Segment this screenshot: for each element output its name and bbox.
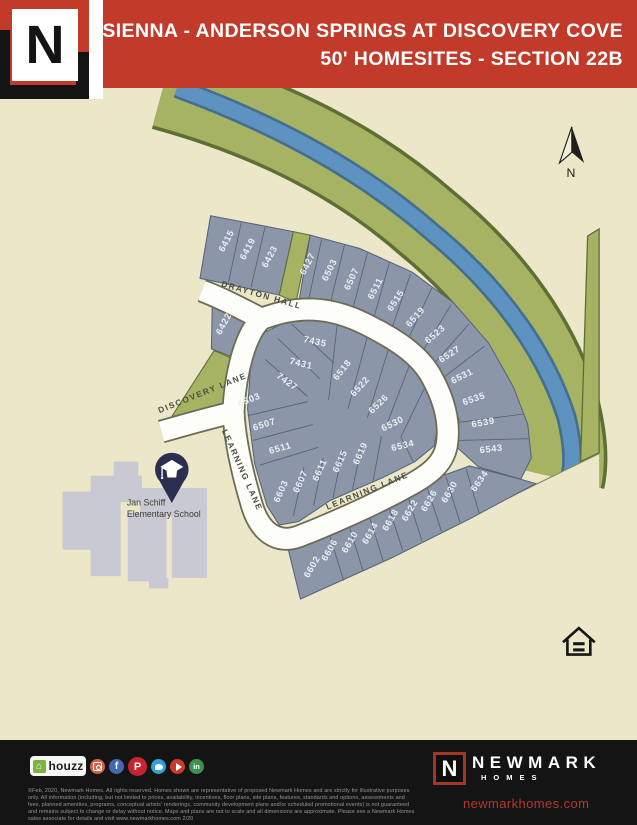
school-name-line1: Jan Schiff xyxy=(127,498,166,508)
houzz-icon: ⌂ xyxy=(33,760,46,773)
site-map: Jan Schiff Elementary School DRAYTON HAL… xyxy=(0,88,637,740)
houzz-badge[interactable]: ⌂ houzz xyxy=(30,756,86,776)
facebook-icon[interactable]: f xyxy=(109,759,124,774)
twitter-icon[interactable] xyxy=(151,759,166,774)
linkedin-icon[interactable]: in xyxy=(189,759,204,774)
title-line-1: SIENNA - ANDERSON SPRINGS AT DISCOVERY C… xyxy=(102,17,623,45)
title-line-2: 50' HOMESITES - SECTION 22B xyxy=(102,45,623,73)
legal-disclaimer: ©Feb, 2020, Newmark Homes. All rights re… xyxy=(28,788,418,823)
pinterest-icon[interactable]: P xyxy=(128,757,147,776)
page-title: SIENNA - ANDERSON SPRINGS AT DISCOVERY C… xyxy=(102,17,623,73)
north-label: N xyxy=(566,166,575,180)
logo-divider xyxy=(89,0,103,99)
houzz-label: houzz xyxy=(49,759,84,773)
instagram-icon[interactable] xyxy=(90,759,105,774)
footer-brand-sub: HOMES xyxy=(481,773,544,782)
newmark-logo: N xyxy=(0,0,89,99)
footer-brand-name: NEWMARK xyxy=(472,753,601,773)
footer-bar: ⌂ houzz f P in ©Feb, 2020, Newmark Homes… xyxy=(0,740,637,825)
logo-n-letter: N xyxy=(26,18,65,72)
social-links: f P in xyxy=(90,757,204,776)
youtube-icon[interactable] xyxy=(170,759,185,774)
school-name-line2: Elementary School xyxy=(127,509,201,519)
footer-logo-n-letter: N xyxy=(442,758,458,780)
logo-inner-square: N xyxy=(12,9,78,81)
footer-newmark-logo: N xyxy=(433,752,466,785)
map-svg: Jan Schiff Elementary School DRAYTON HAL… xyxy=(0,88,637,740)
website-link[interactable]: newmarkhomes.com xyxy=(463,796,589,811)
